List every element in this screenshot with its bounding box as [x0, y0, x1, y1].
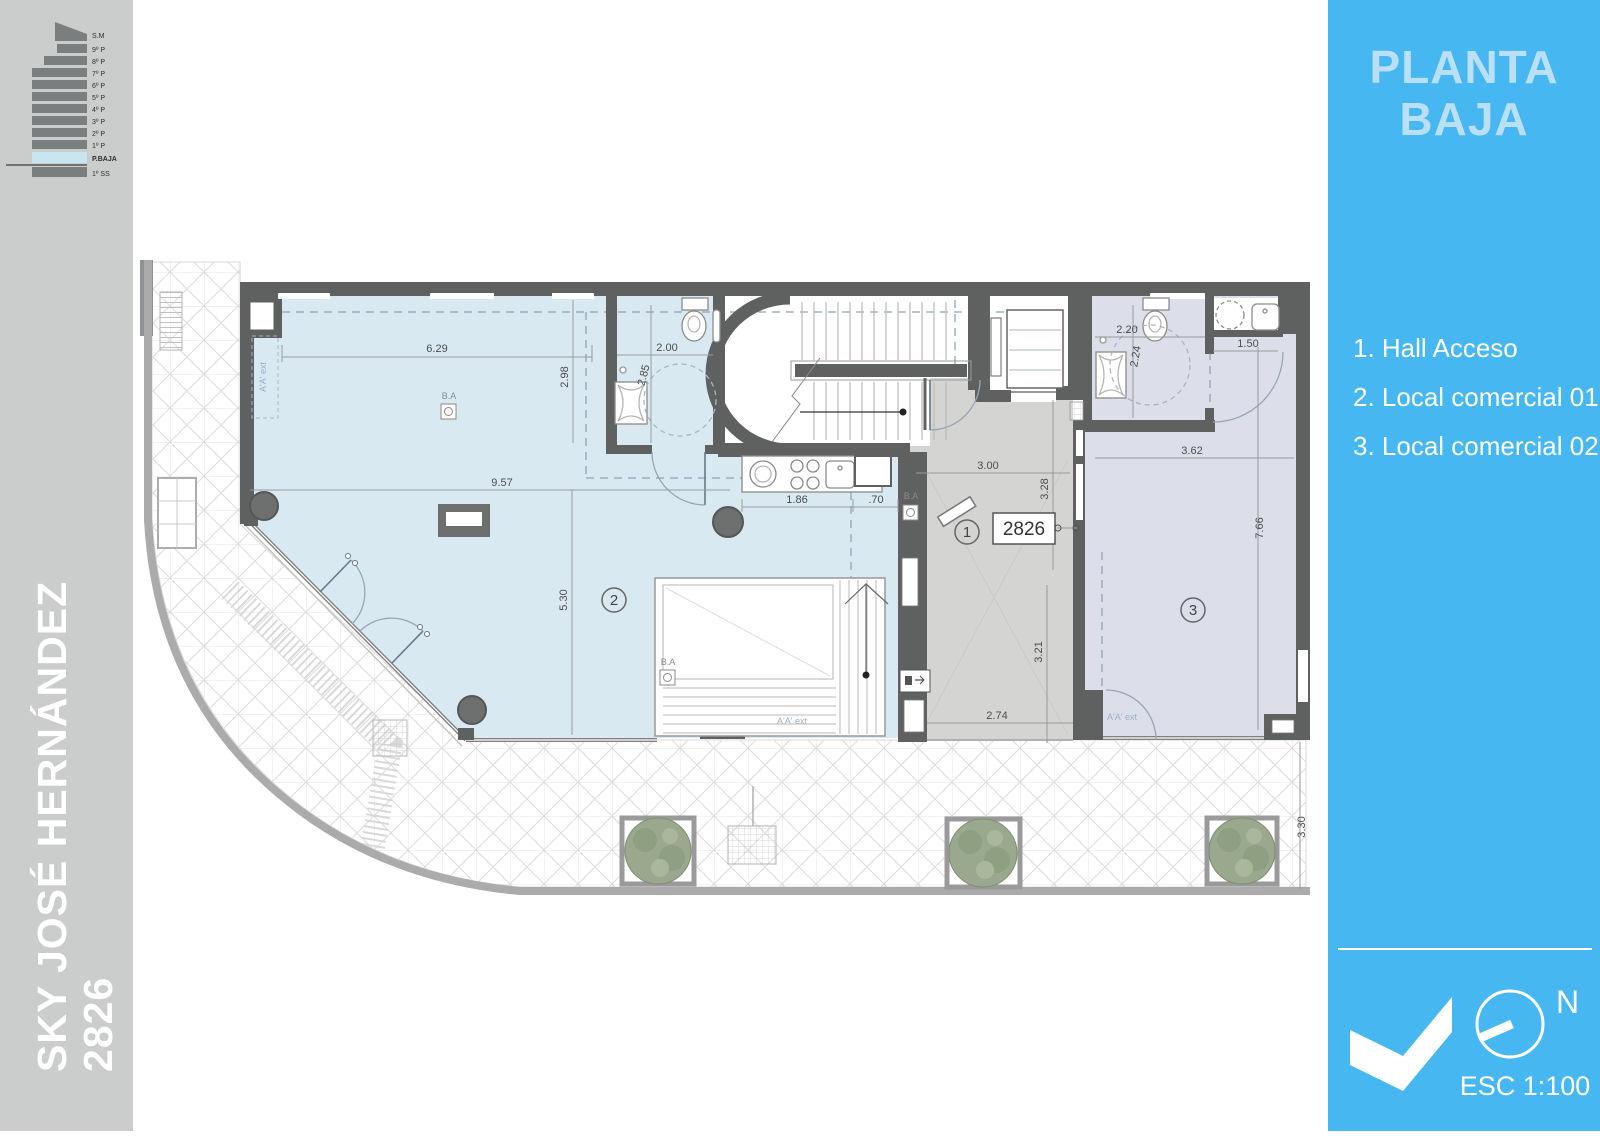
elevator-counterweight	[991, 318, 1001, 376]
scale-label: ESC 1:100	[1460, 1071, 1591, 1101]
sheet-title-line1: PLANTA	[1328, 42, 1600, 94]
dim-label: 7.66	[1254, 517, 1266, 538]
tree	[622, 818, 694, 884]
sidebar: S.M 9º P 8º P 7º P 6º P 5º P 4º P 3º P 2…	[0, 0, 133, 1131]
dim-label: 3.62	[1181, 445, 1202, 457]
legend-item-local2: 3. Local comercial 02	[1353, 431, 1599, 462]
dim-label: 1.50	[1237, 338, 1258, 350]
dim-label: 2.20	[1116, 324, 1137, 336]
room-marker-local2: 3	[1189, 602, 1197, 619]
dim-label: 3.00	[977, 460, 998, 472]
toilet-tank	[682, 298, 708, 310]
floor-label: 3º P	[92, 119, 105, 126]
dim-label: 1.86	[786, 494, 807, 506]
stair-rail	[795, 364, 967, 377]
floor-label: 1º SS	[92, 171, 110, 178]
ba-label: B.A	[904, 491, 919, 501]
tree	[947, 819, 1020, 887]
room-marker-local1: 2	[610, 592, 618, 609]
kitchen-cabinet	[855, 456, 891, 486]
floor-label: S.M	[92, 33, 105, 40]
dim-label: 3.21	[1033, 641, 1045, 662]
floor-label: 4º P	[92, 107, 105, 114]
dim-label: 9.57	[491, 477, 512, 489]
street-number: 2826	[1003, 519, 1045, 540]
floor-stack-diagram: S.M 9º P 8º P 7º P 6º P 5º P 4º P 3º P 2…	[0, 8, 133, 198]
floor-label: 1º P	[92, 143, 105, 150]
sidewalk-vent	[160, 292, 182, 350]
alcove-basin	[1216, 301, 1244, 329]
dim-label: 6.29	[426, 343, 447, 355]
floor-bar-pbaja-highlight	[32, 152, 87, 163]
floor-stack-bars	[32, 22, 87, 177]
dim-label: 2.00	[656, 342, 677, 354]
ba-label: B.A	[661, 657, 676, 667]
north-compass: N	[1477, 984, 1579, 1057]
legend-item-local1: 2. Local comercial 01	[1353, 382, 1599, 413]
dim-label: 2.74	[986, 710, 1007, 722]
kitchenette	[742, 456, 891, 492]
floor-label: 2º P	[92, 131, 105, 138]
basement-stair	[655, 578, 888, 736]
sheet-title-line2: BAJA	[1328, 94, 1600, 146]
tree	[1207, 818, 1277, 884]
dim-label: 3.28	[1039, 478, 1051, 499]
room-marker-hall: 1	[963, 524, 971, 541]
sheet-title: PLANTA BAJA	[1328, 42, 1600, 146]
ba-label: B.A	[442, 391, 457, 401]
floor-label: 6º P	[92, 83, 105, 90]
section-label: A'A' ext	[777, 716, 807, 726]
developer-logo	[1350, 997, 1452, 1091]
dim-label: .70	[868, 494, 883, 506]
dim-label: 2.98	[559, 366, 571, 387]
alcove-sink	[1252, 304, 1279, 330]
dim-label: 5.30	[558, 589, 570, 610]
compass-needle	[1480, 1024, 1512, 1038]
electrical-box	[900, 670, 930, 692]
floor-plan-drawing: B.A B.A B.A A'A' ext A'A' ext A'A' ext 6	[133, 0, 1310, 1131]
project-name: SKY JOSÉ HERNÁNDEZ	[30, 581, 76, 1072]
sidewalk-grate	[373, 720, 407, 756]
panel-divider	[1338, 948, 1592, 950]
floor-stack-labels: S.M 9º P 8º P 7º P 6º P 5º P 4º P 3º P 2…	[92, 33, 117, 178]
legend-item-hall: 1. Hall Acceso	[1353, 333, 1599, 364]
sidewalk-planter	[158, 478, 196, 548]
floor-label-pbaja: P.BAJA	[92, 156, 117, 163]
section-label: A'A' ext	[1107, 712, 1137, 722]
section-label: A'A' ext	[258, 362, 268, 392]
panel-footer: N ESC 1:100	[1328, 960, 1600, 1131]
legend: 1. Hall Acceso 2. Local comercial 01 3. …	[1353, 333, 1599, 480]
north-label: N	[1556, 984, 1579, 1020]
project-title-vertical: SKY JOSÉ HERNÁNDEZ 2826	[30, 581, 122, 1072]
floor-label: 8º P	[92, 59, 105, 66]
floor-label: 5º P	[92, 95, 105, 102]
dim-label: 3.30	[1296, 816, 1308, 837]
title-panel: PLANTA BAJA 1. Hall Acceso 2. Local come…	[1328, 0, 1600, 1131]
toilet-tank	[1143, 298, 1169, 310]
floor-label: 9º P	[92, 47, 105, 54]
project-number: 2826	[76, 581, 122, 1072]
floor-plan: B.A B.A B.A A'A' ext A'A' ext A'A' ext 6	[133, 0, 1310, 1131]
counter-unit	[438, 504, 490, 537]
floor-label: 7º P	[92, 71, 105, 78]
